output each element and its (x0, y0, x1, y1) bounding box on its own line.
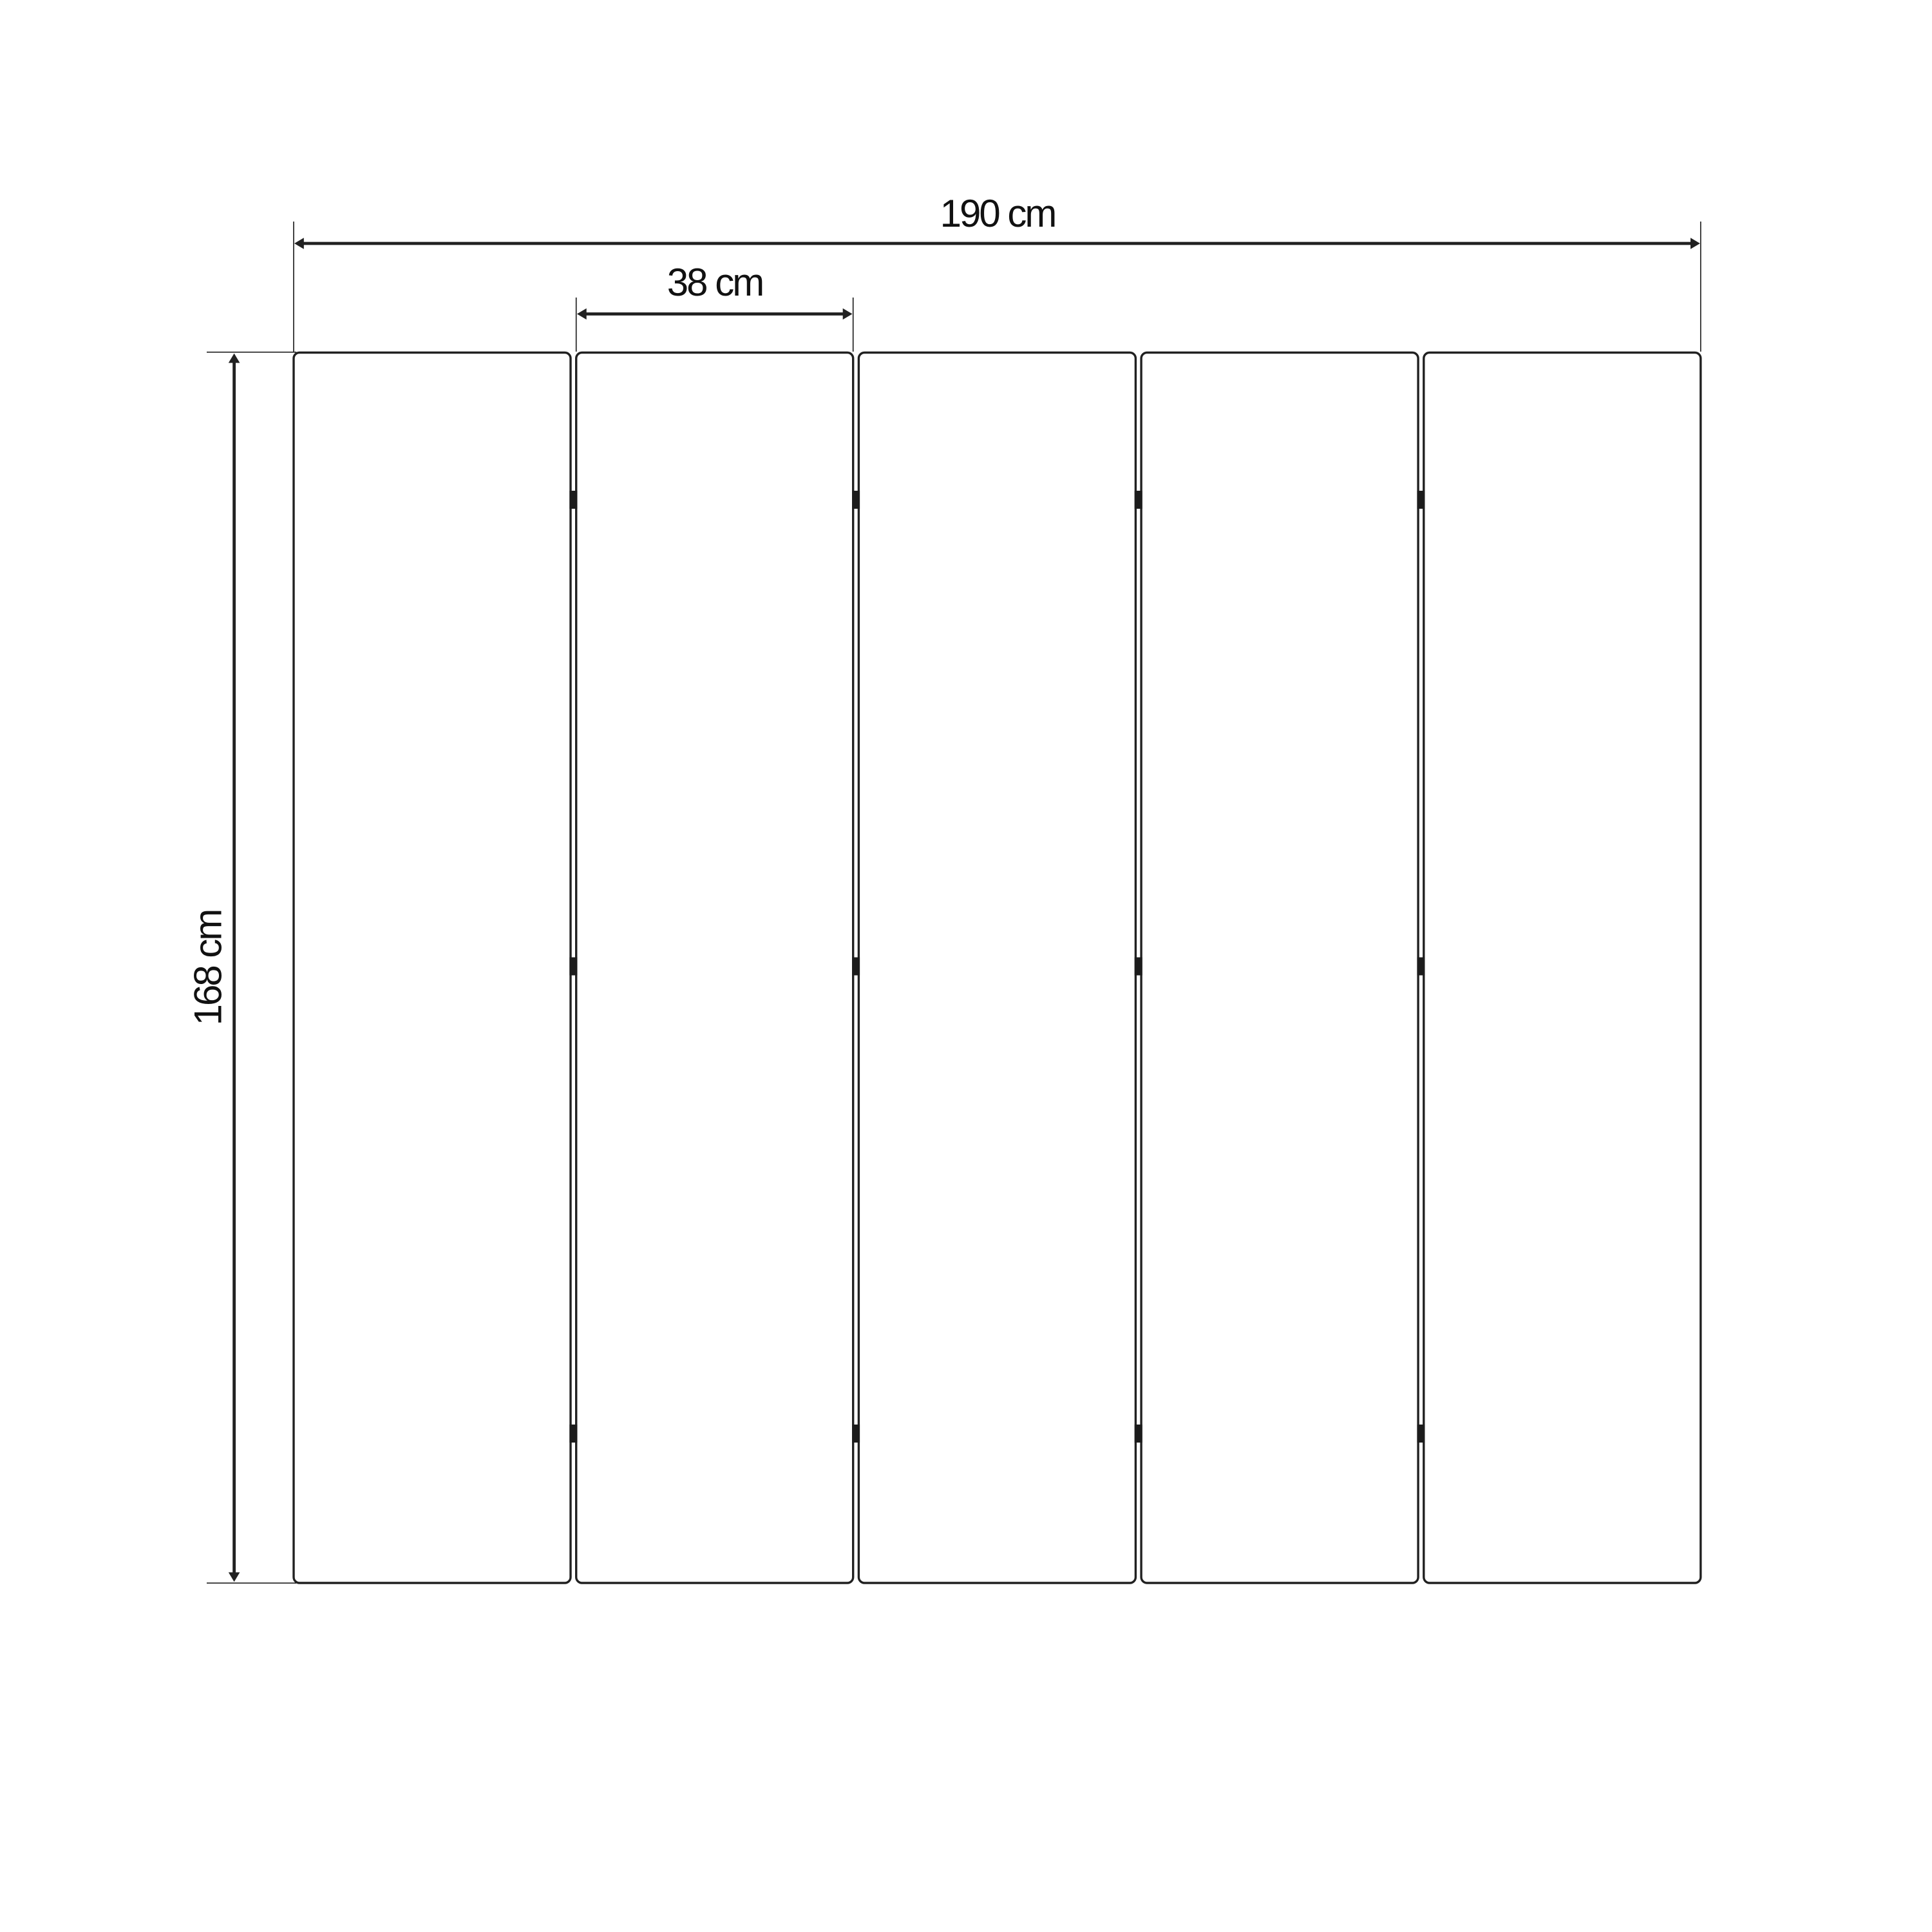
svg-text:38 cm: 38 cm (667, 261, 762, 304)
svg-text:168 cm: 168 cm (187, 911, 230, 1026)
svg-text:190 cm: 190 cm (940, 192, 1056, 235)
